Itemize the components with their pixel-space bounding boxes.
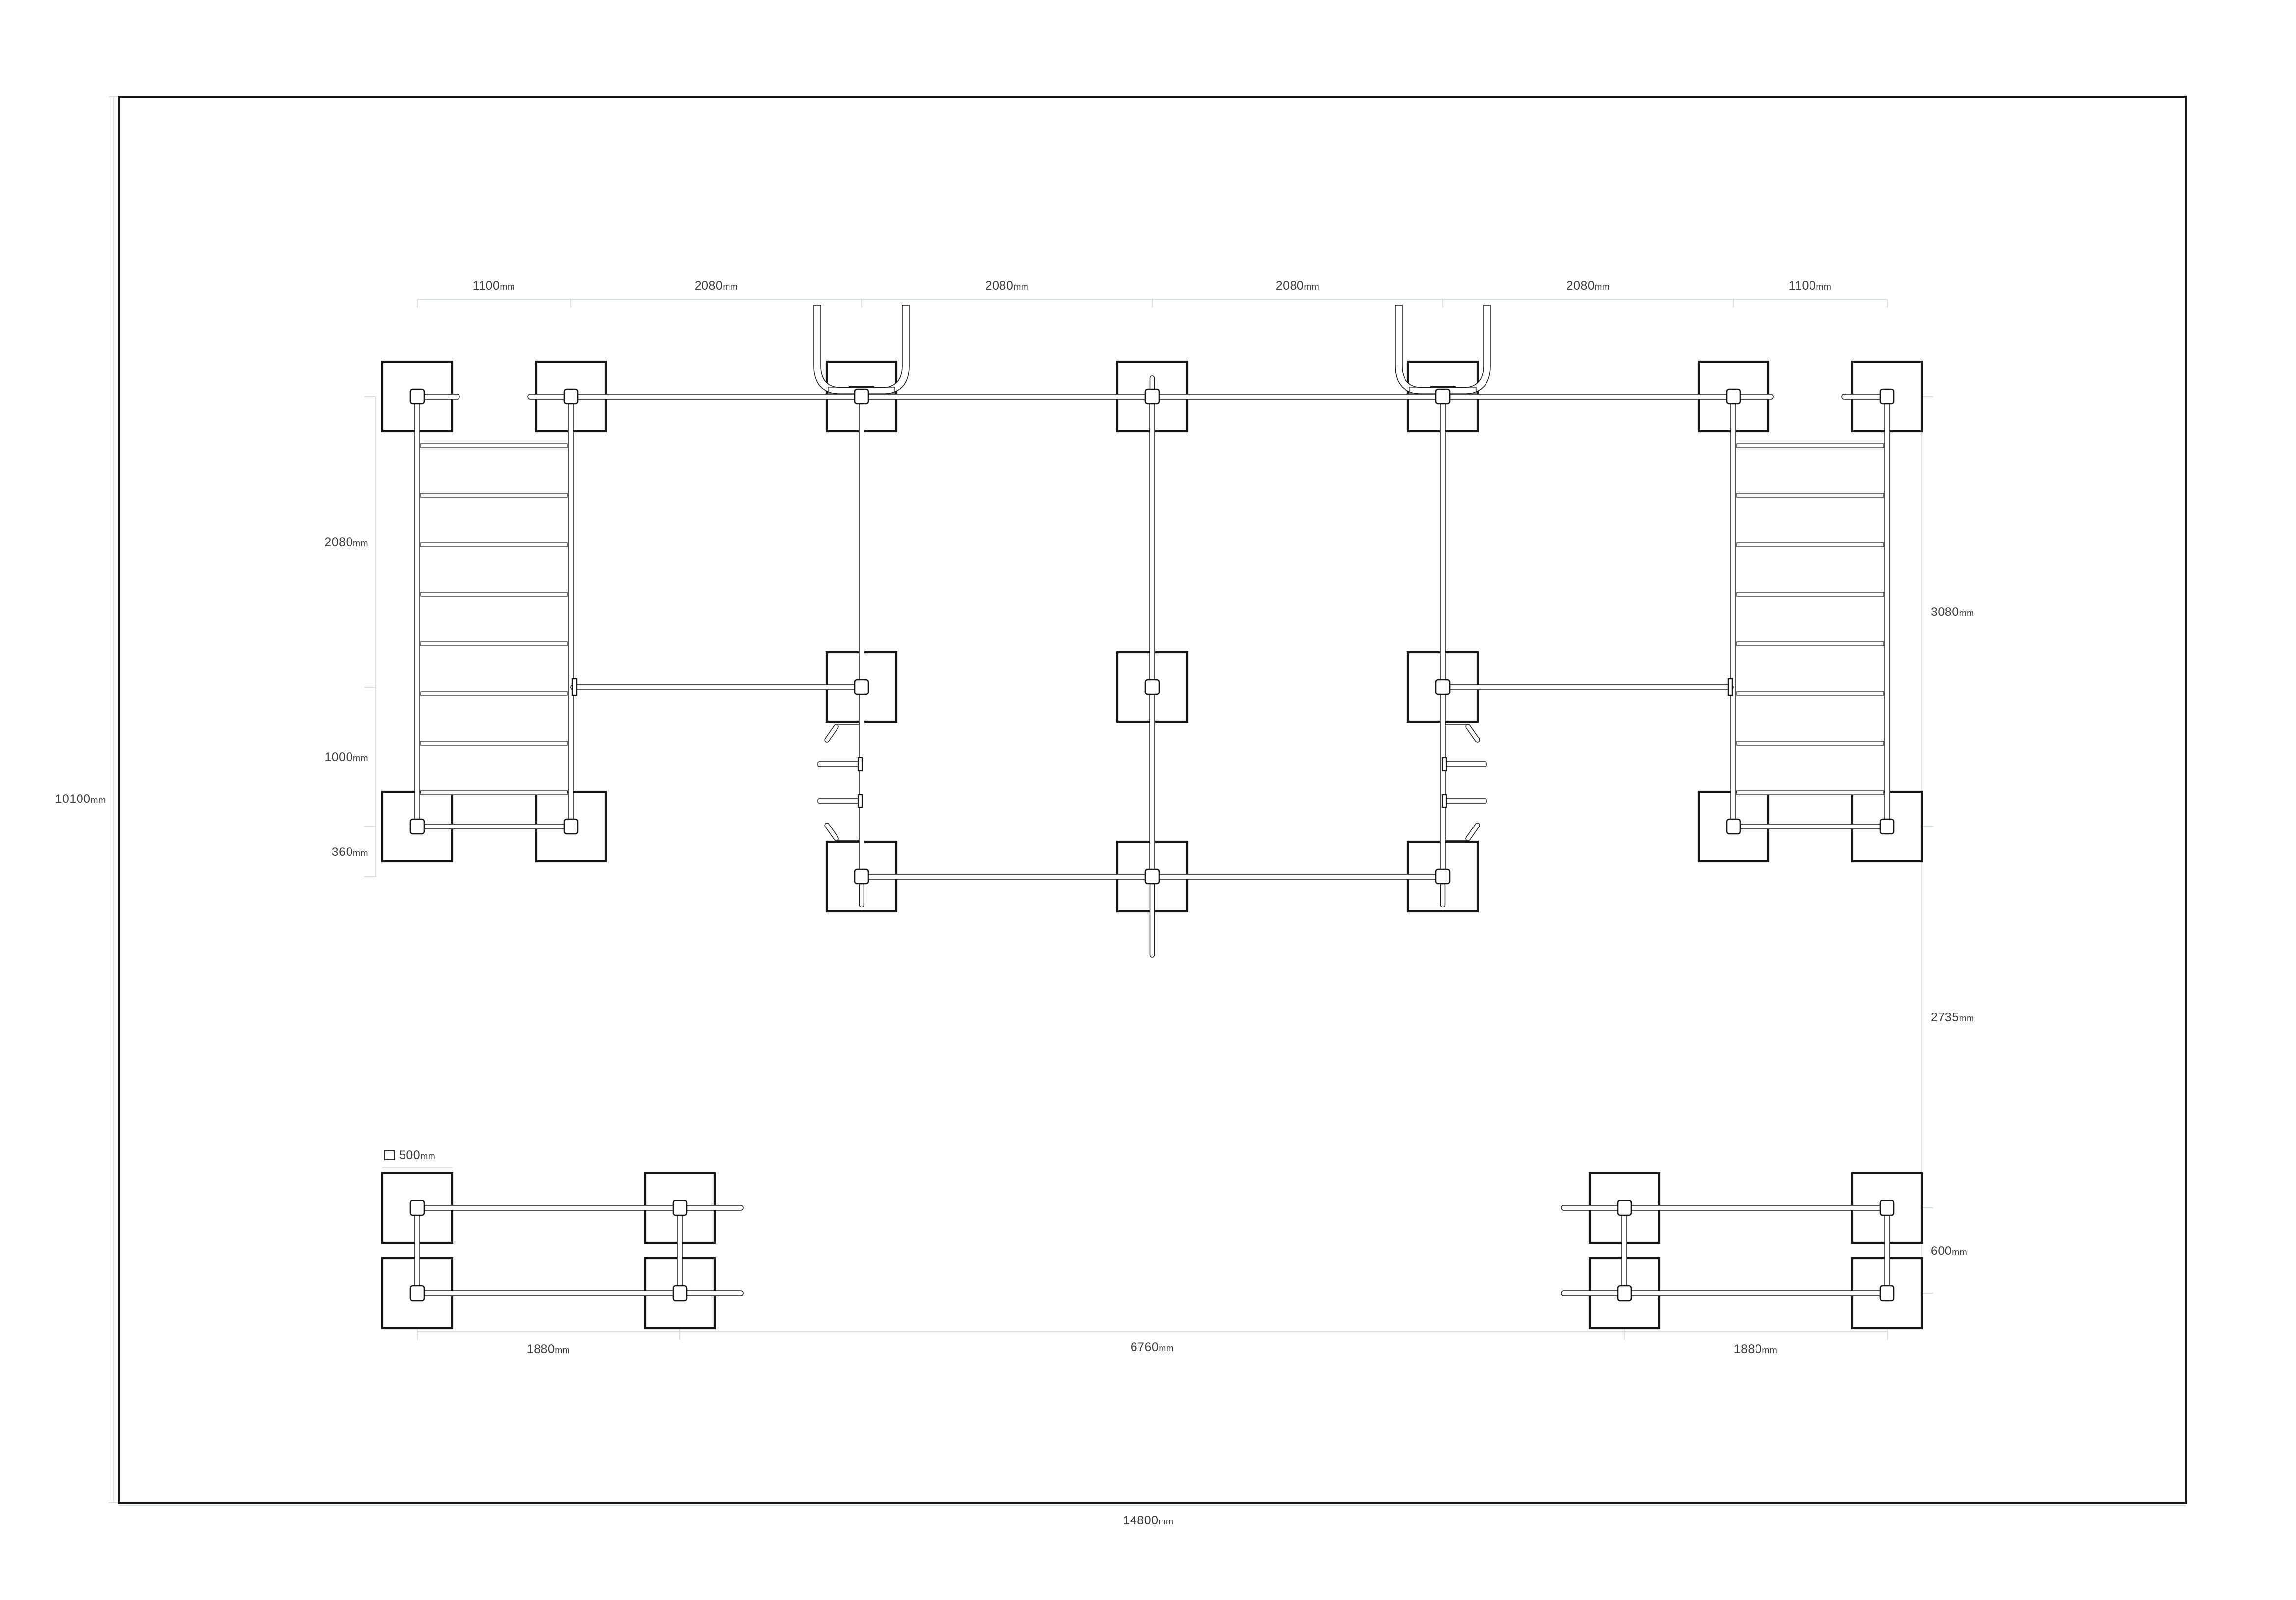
dim-label-right-2: 2735mm bbox=[1931, 1011, 1974, 1024]
dim-label-right-3: 600mm bbox=[1931, 1244, 1967, 1258]
pipe-connector bbox=[1436, 869, 1450, 884]
rail-connector-tick bbox=[572, 679, 577, 695]
step-bar bbox=[1445, 799, 1486, 803]
pipe-connector bbox=[1436, 680, 1450, 694]
pipe-connector bbox=[410, 1200, 424, 1215]
frame-rail bbox=[423, 394, 459, 399]
legend-square-icon bbox=[385, 1151, 394, 1160]
step-bar-angled bbox=[1465, 723, 1480, 743]
pipe-connector bbox=[1618, 1200, 1631, 1215]
dim-label-top-4: 2080mm bbox=[1276, 279, 1320, 293]
step-mount bbox=[1442, 758, 1446, 771]
step-bar-angled bbox=[824, 822, 839, 842]
step-bar bbox=[818, 762, 859, 767]
frame-post bbox=[859, 693, 864, 872]
frame-rail bbox=[1733, 824, 1887, 829]
ladder-rung bbox=[421, 543, 567, 547]
frame-rail bbox=[1443, 685, 1733, 690]
frame-post bbox=[1440, 693, 1445, 872]
pipe-connector bbox=[564, 389, 578, 404]
step-bar bbox=[1445, 762, 1486, 767]
pipe-connector bbox=[564, 819, 578, 834]
blueprint-svg: 1100mm2080mm2080mm2080mm2080mm1100mm2080… bbox=[0, 0, 2296, 1600]
dim-label-left-2: 1000mm bbox=[324, 750, 368, 764]
ladder-rung bbox=[421, 592, 567, 596]
legend-label: 500mm bbox=[399, 1148, 435, 1162]
frame-post bbox=[1150, 693, 1155, 872]
pipe-connector bbox=[1727, 819, 1740, 834]
dim-label-overall-width: 14800mm bbox=[1123, 1514, 1173, 1527]
pipe-connector bbox=[1145, 680, 1159, 694]
step-bar-angled bbox=[824, 723, 839, 743]
frame-post bbox=[1885, 1214, 1890, 1287]
post-end-cap bbox=[1150, 883, 1155, 957]
pipe-connector bbox=[1436, 389, 1450, 404]
frame-rail bbox=[417, 1205, 743, 1210]
frame-post bbox=[1440, 402, 1445, 681]
ladder-rung bbox=[1737, 791, 1884, 795]
frame-post bbox=[1885, 402, 1890, 821]
rail-connector-tick bbox=[1728, 679, 1732, 695]
pipe-connector bbox=[1880, 389, 1894, 404]
pipe-connector bbox=[410, 389, 424, 404]
ladder-rung bbox=[421, 493, 567, 497]
ladder-rung bbox=[1737, 444, 1884, 448]
frame-post bbox=[1731, 402, 1736, 821]
pipe-connector bbox=[673, 1200, 687, 1215]
step-bar bbox=[818, 799, 859, 803]
frame-post bbox=[415, 1214, 420, 1287]
pipe-connector bbox=[855, 680, 868, 694]
dim-label-bottom-3: 1880mm bbox=[1734, 1342, 1778, 1356]
pipe-connector bbox=[410, 1286, 424, 1301]
pipe-connector bbox=[1145, 389, 1159, 404]
frame-post bbox=[859, 402, 864, 681]
ladder-rung bbox=[421, 692, 567, 695]
dim-label-top-3: 2080mm bbox=[985, 279, 1029, 293]
pipe-connector bbox=[1880, 819, 1894, 834]
pipe-connector bbox=[1880, 1200, 1894, 1215]
frame-post bbox=[568, 402, 573, 821]
ladder-rung bbox=[421, 642, 567, 646]
pipe-connector bbox=[673, 1286, 687, 1301]
ladder-rung bbox=[1737, 741, 1884, 745]
frame-rail bbox=[1561, 1291, 1887, 1296]
dim-label-left-1: 2080mm bbox=[324, 535, 368, 549]
ladder-rung bbox=[421, 444, 567, 448]
ladder-rung bbox=[1737, 493, 1884, 497]
ladder-rung bbox=[421, 741, 567, 745]
dim-label-top-2: 2080mm bbox=[695, 279, 738, 293]
step-mount bbox=[858, 795, 862, 807]
dim-label-top-1: 1100mm bbox=[473, 279, 515, 293]
frame-post bbox=[1622, 1214, 1627, 1287]
frame-rail bbox=[417, 1291, 743, 1296]
pipe-connector bbox=[1145, 869, 1159, 884]
pipe-connector bbox=[1880, 1286, 1894, 1301]
dim-label-overall-height: 10100mm bbox=[55, 792, 106, 806]
dim-label-bottom-1: 1880mm bbox=[527, 1342, 570, 1356]
frame-rail bbox=[571, 685, 862, 690]
dim-label-top-5: 2080mm bbox=[1567, 279, 1610, 293]
ladder-rung bbox=[421, 791, 567, 795]
ladder-rung bbox=[1737, 692, 1884, 695]
pipe-connector bbox=[855, 389, 868, 404]
ladder-rung bbox=[1737, 642, 1884, 646]
frame-post bbox=[415, 402, 420, 821]
blueprint-page: 1100mm2080mm2080mm2080mm2080mm1100mm2080… bbox=[0, 0, 2296, 1600]
ladder-rung bbox=[1737, 543, 1884, 547]
dim-label-bottom-2: 6760mm bbox=[1131, 1340, 1174, 1354]
pipe-connector bbox=[1727, 389, 1740, 404]
frame-rail bbox=[417, 824, 571, 829]
post-end-cap bbox=[860, 883, 864, 907]
step-mount bbox=[1442, 795, 1446, 807]
dim-label-top-6: 1100mm bbox=[1789, 279, 1832, 293]
post-end-cap bbox=[1441, 883, 1445, 907]
pipe-connector bbox=[1618, 1286, 1631, 1301]
pipe-connector bbox=[410, 819, 424, 834]
step-mount bbox=[858, 758, 862, 771]
step-bar-angled bbox=[1465, 822, 1480, 842]
dim-label-left-3: 360mm bbox=[332, 845, 368, 859]
frame-post bbox=[1150, 402, 1155, 681]
ladder-rung bbox=[1737, 592, 1884, 596]
dim-label-right-1: 3080mm bbox=[1931, 605, 1974, 619]
frame-rail bbox=[1561, 1205, 1887, 1210]
pipe-connector bbox=[855, 869, 868, 884]
frame-post bbox=[677, 1214, 682, 1287]
